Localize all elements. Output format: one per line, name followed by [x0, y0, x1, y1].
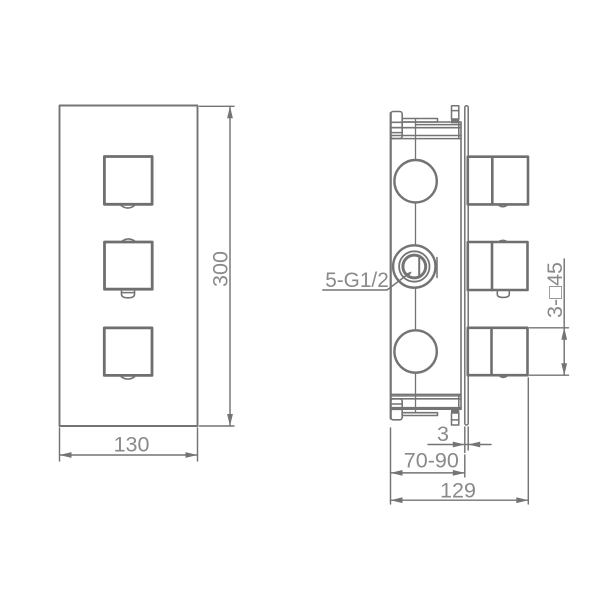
svg-text:3: 3 [437, 422, 449, 446]
svg-text:5-G1/2: 5-G1/2 [325, 269, 389, 292]
svg-text:129: 129 [440, 479, 476, 503]
svg-text:70-90: 70-90 [404, 448, 459, 472]
svg-text:130: 130 [114, 433, 150, 457]
svg-text:300: 300 [209, 251, 233, 287]
svg-text:3-□45: 3-□45 [543, 262, 567, 318]
